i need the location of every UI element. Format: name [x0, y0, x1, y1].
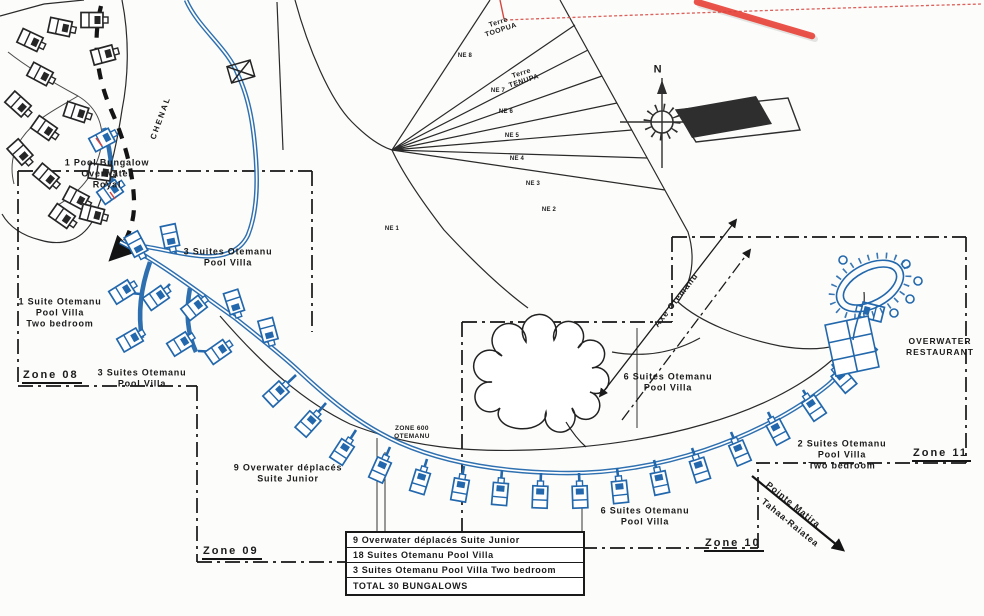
label-suite1-line2: Pool Villa	[36, 309, 84, 318]
label-zone600-line1: ZONE 600	[395, 426, 429, 433]
label-suites3-north-line1: 3 Suites Otemanu	[184, 248, 273, 257]
label-parcel-ne6: NE 6	[499, 109, 513, 115]
label-suites6-north-line2: Pool Villa	[644, 384, 692, 393]
label-suites6-north-line1: 6 Suites Otemanu	[624, 373, 713, 382]
label-compass-north: N	[654, 65, 663, 76]
label-suite1-line3: Two bedroom	[26, 320, 93, 329]
label-parcel-ne1: NE 1	[385, 226, 399, 232]
label-parcel-ne7: NE 7	[491, 88, 505, 94]
project-bungalows	[89, 126, 885, 508]
label-suites3-south-line2: Pool Villa	[118, 380, 166, 389]
label-suites3-north-line2: Pool Villa	[204, 259, 252, 268]
label-overwater9-line2: Suite Junior	[257, 475, 319, 484]
compass-rose	[620, 78, 800, 168]
label-pool-bungalow-line3: Royal	[93, 181, 122, 190]
label-parcel-ne3: NE 3	[526, 181, 540, 187]
legend-row-pool-villa: 18 Suites Otemanu Pool Villa	[347, 548, 583, 563]
label-parcel-ne2: NE 2	[542, 207, 556, 213]
label-zone-09: Zone 09	[202, 545, 262, 560]
label-overwater9-line1: 9 Overwater déplacés	[234, 464, 343, 473]
label-parcel-ne4: NE 4	[510, 156, 524, 162]
label-suites6-south-line1: 6 Suites Otemanu	[601, 507, 690, 516]
legend-row-two-bedroom: 3 Suites Otemanu Pool Villa Two bedroom	[347, 563, 583, 578]
label-zone-10: Zone 10	[704, 537, 764, 552]
label-suites2-line3: Two bedroom	[808, 462, 875, 471]
legend-row-overwater: 9 Overwater déplacés Suite Junior	[347, 533, 583, 548]
label-suites2-line2: Pool Villa	[818, 451, 866, 460]
label-suite1-line1: 1 Suite Otemanu	[18, 298, 101, 307]
label-zone-08: Zone 08	[22, 369, 82, 384]
label-suites2-line1: 2 Suites Otemanu	[798, 440, 887, 449]
label-zone-11: Zone 11	[912, 447, 971, 462]
label-zone600-line2: OTEMANU	[394, 434, 430, 441]
legend-box: 9 Overwater déplacés Suite Junior 18 Sui…	[345, 531, 585, 596]
label-suites6-south-line2: Pool Villa	[621, 518, 669, 527]
label-pool-bungalow-line2: Overwater	[81, 170, 132, 179]
label-parcel-ne5: NE 5	[505, 133, 519, 139]
label-parcel-ne8: NE 8	[458, 53, 472, 59]
legend-total: TOTAL 30 BUNGALOWS	[347, 578, 583, 594]
red-marker-strokes	[96, 0, 982, 199]
label-restaurant-line2: RESTAURANT	[906, 348, 974, 357]
label-restaurant-line1: OVERWATER	[909, 337, 972, 346]
vegetation-cloud	[474, 314, 609, 447]
label-pool-bungalow-line1: 1 Pool Bungalow	[65, 159, 150, 168]
label-suites3-south-line1: 3 Suites Otemanu	[98, 369, 187, 378]
resort-site-plan: 1 Pool Bungalow Overwater Royal 3 Suites…	[0, 0, 984, 616]
